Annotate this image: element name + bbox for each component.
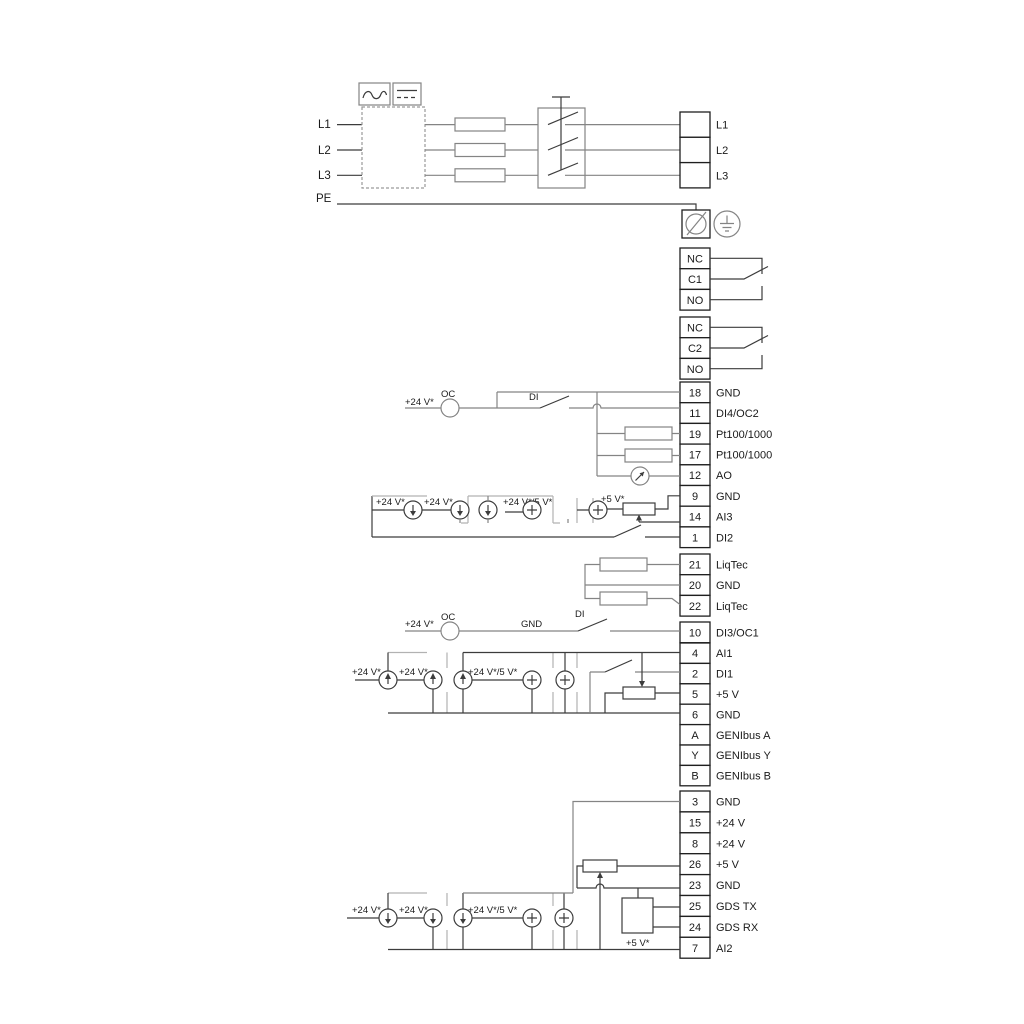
power-lead-wires: [337, 125, 362, 176]
label-di: DI: [575, 609, 585, 620]
terminal-number: 26: [689, 859, 701, 871]
label-plus24v: +24 V*: [424, 497, 453, 508]
wires-box-to-fuses: [425, 125, 455, 176]
fuse-l3: [455, 169, 505, 182]
terminal-label: LiqTec: [716, 601, 748, 613]
liqtec-resistor-2: [600, 592, 647, 605]
terminal-number: 2: [692, 669, 698, 681]
di1-switch-blade: [605, 660, 632, 672]
di4-wire-with-hop: [569, 404, 680, 408]
terminal-number: 5: [692, 689, 698, 701]
terminal-label: GENIbus Y: [716, 750, 771, 762]
terminal-label: +5 V: [716, 689, 740, 701]
up-arrow: [597, 872, 603, 878]
pt100-ao-circuit: [597, 427, 680, 485]
rcd-ac-symbol-box: [359, 83, 390, 105]
pt100-resistor-2: [625, 449, 672, 462]
potentiometer: [623, 503, 655, 515]
relay1-nc-label: NC: [687, 253, 703, 265]
power-in-l3-label: L3: [318, 170, 331, 182]
relay2-c2-label: C2: [688, 343, 702, 355]
label-plus24v: +24 V*: [405, 397, 434, 408]
label-di: DI: [529, 392, 539, 403]
terminal-label: AI3: [716, 512, 733, 524]
power-in-l1-label: L1: [318, 119, 331, 131]
terminal-label: GND: [716, 387, 741, 399]
relay2-contact: [710, 327, 768, 368]
power-in-l2-label: L2: [318, 145, 331, 157]
gnd3-wire: [573, 802, 680, 894]
terminal-number: 24: [689, 922, 701, 934]
terminal-label: DI1: [716, 669, 733, 681]
power-input-section: L1 L2 L3 PE L1 L2 L3: [316, 83, 740, 238]
label-gnd: GND: [521, 619, 542, 630]
terminal-number: 10: [689, 627, 701, 639]
label-plus24v: +24 V*: [399, 667, 428, 678]
terminal-strip-liqtec: 21 20 22 LiqTec GND LiqTec: [585, 554, 748, 616]
terminal-number: 23: [689, 880, 701, 892]
relay1-c1-label: C1: [688, 274, 702, 286]
terminal-label: +5 V: [716, 859, 740, 871]
terminal-label: GND: [716, 580, 741, 592]
terminal-number: 18: [689, 387, 701, 399]
wiring-diagram-canvas: L1 L2 L3 PE L1 L2 L3: [0, 0, 1024, 1024]
pt100-resistor-1: [625, 427, 672, 440]
terminal-number: 3: [692, 797, 698, 809]
di3-switch-blade: [578, 619, 607, 631]
wiring-diagram: L1 L2 L3 PE L1 L2 L3: [0, 0, 1024, 1024]
terminal-label: DI3/OC1: [716, 627, 759, 639]
terminal-label: GENIbus A: [716, 730, 771, 742]
terminal-number: 7: [692, 943, 698, 955]
terminal-number: 15: [689, 817, 701, 829]
ai3-sensor-chain: +24 V* +24 V* +24 V*/5 V* +5 V*: [372, 494, 680, 537]
power-in-pe-label: PE: [316, 193, 332, 205]
fuse-l2: [455, 144, 505, 157]
label-plus24v: +24 V*: [405, 619, 434, 630]
rcd-dc-symbol-box: [393, 83, 421, 105]
terminal-number: 17: [689, 450, 701, 462]
relay1-contact: [710, 258, 768, 299]
label-oc: OC: [441, 389, 455, 400]
terminal-cell: [680, 137, 710, 162]
fuse-l1: [455, 118, 505, 131]
down-arrow: [639, 681, 645, 687]
di4-switch-blade: [540, 396, 569, 408]
power-out-l2-label: L2: [716, 145, 728, 157]
label-plus24v: +24 V*: [352, 667, 381, 678]
terminal-strip-io2: 4 2 5 6 A Y B AI1 DI1 +5 V GND GENIbus A…: [680, 643, 771, 786]
terminal-label: AI2: [716, 943, 733, 955]
terminal-number: Y: [691, 750, 699, 762]
terminal-number: 6: [692, 709, 698, 721]
terminal-number: 21: [689, 559, 701, 571]
rcd-filter-box: [362, 107, 425, 188]
relay-1: NC C1 NO: [680, 248, 768, 310]
terminal-label: DI2: [716, 532, 733, 544]
terminal-label: LiqTec: [716, 559, 748, 571]
gds-module: [622, 898, 653, 933]
terminal-number: A: [691, 730, 699, 742]
liqtec-resistor-1: [600, 558, 647, 571]
power-out-l3-label: L3: [716, 170, 728, 182]
relay2-no-label: NO: [687, 364, 704, 376]
power-out-l1-label: L1: [716, 120, 728, 132]
label-plus24v-5v: +24 V*/5 V*: [468, 667, 518, 678]
oc-circle: [441, 399, 459, 417]
terminal-number: 20: [689, 580, 701, 592]
terminal-number: 1: [692, 532, 698, 544]
terminal-strip-io1: 18 11 19 17 12 9 14 1 GND DI4/OC2 Pt100/…: [680, 382, 772, 548]
gnd23-wire-with-hop: [577, 884, 680, 888]
terminal-number: 22: [689, 601, 701, 613]
relay2-nc-label: NC: [687, 322, 703, 334]
label-plus24v-5v: +24 V*/5 V*: [468, 905, 518, 916]
relay1-no-label: NO: [687, 295, 704, 307]
terminal-label: +24 V: [716, 817, 746, 829]
label-plus24v: +24 V*: [376, 497, 405, 508]
terminal-cell: [680, 163, 710, 188]
label-plus5v: +5 V*: [626, 938, 650, 949]
terminal-label: GND: [716, 797, 741, 809]
terminal-number: 12: [689, 470, 701, 482]
ai1-sensor-chain: +24 V* +24 V* +24 V*/5 V*: [352, 653, 680, 714]
potentiometer: [583, 860, 617, 872]
terminal-number: 9: [692, 491, 698, 503]
oc-circle: [441, 622, 459, 640]
terminal-label: AI1: [716, 648, 733, 660]
terminal-cell: [680, 112, 710, 137]
terminal-label: GND: [716, 880, 741, 892]
terminal-number: 8: [692, 838, 698, 850]
terminal-label: +24 V: [716, 838, 746, 850]
option-brackets: [388, 893, 577, 950]
relay-2: NC C2 NO: [680, 317, 768, 379]
terminal-label: Pt100/1000: [716, 429, 772, 441]
label-plus24v: +24 V*: [352, 905, 381, 916]
pe-wire: [337, 204, 696, 210]
terminal-number: 11: [689, 408, 700, 420]
terminal-label: GND: [716, 491, 741, 503]
di2-switch-blade: [614, 525, 641, 537]
terminal-label: DI4/OC2: [716, 408, 759, 420]
label-plus24v: +24 V*: [399, 905, 428, 916]
terminal-label: AO: [716, 470, 732, 482]
terminal-number: 25: [689, 901, 701, 913]
ai2-gds-chain: +24 V* +24 V* +24 V*/5 V* +5 V*: [347, 802, 680, 950]
terminal-label: GDS TX: [716, 901, 757, 913]
terminal-number: B: [691, 771, 698, 783]
terminal-number: 14: [689, 512, 701, 524]
terminal-label: GENIbus B: [716, 771, 771, 783]
potentiometer: [623, 687, 655, 699]
label-oc: OC: [441, 612, 455, 623]
terminal-label: GND: [716, 709, 741, 721]
terminal-strip-io3: 3 15 8 26 23 25 24 7 GND +24 V +24 V +5 …: [680, 791, 759, 958]
option-brackets: [388, 653, 577, 714]
terminal-number: 4: [692, 648, 698, 660]
terminal-label: GDS RX: [716, 922, 759, 934]
terminal-number: 19: [689, 429, 701, 441]
terminal-label: Pt100/1000: [716, 450, 772, 462]
